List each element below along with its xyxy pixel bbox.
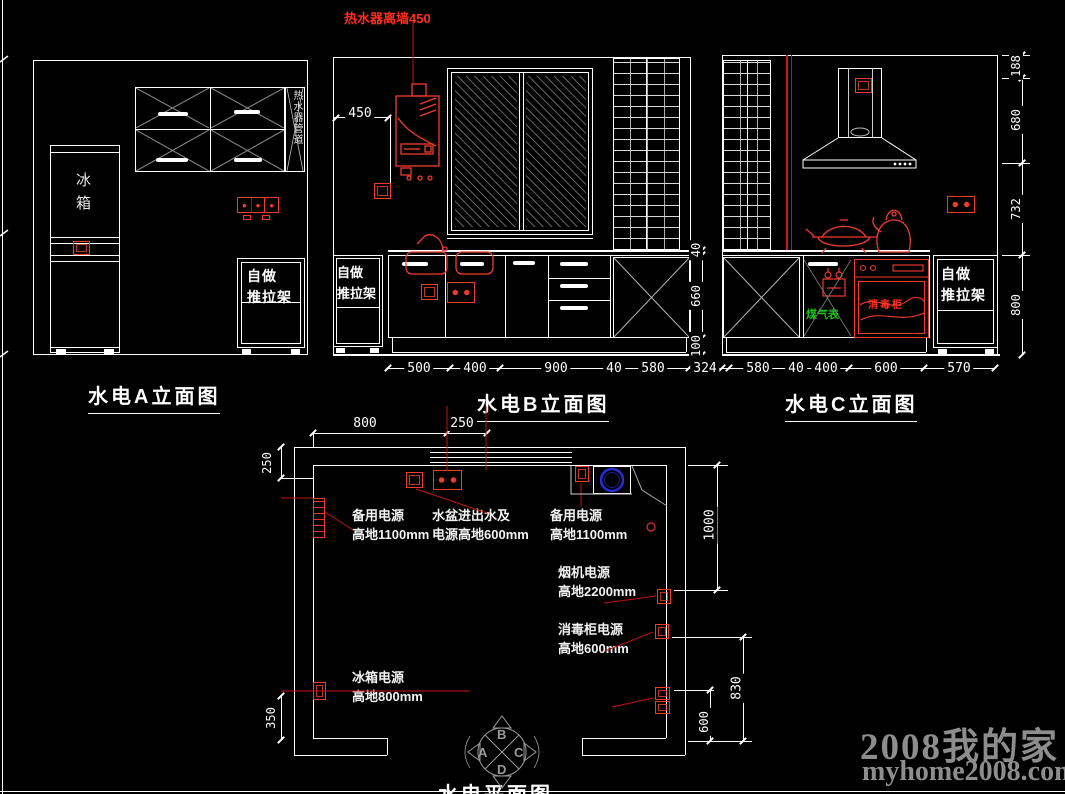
disinfection-cabinet-detail (854, 265, 929, 320)
water-heater-icon (396, 84, 439, 180)
elevation-index-compass-icon (465, 716, 539, 788)
plan-counter-detail (571, 465, 667, 531)
cad-drawing-kitchen-plumbing-electrical: 冰箱 热水器管道 自做 推拉架 (0, 0, 1065, 794)
line-art-layer (0, 0, 1065, 794)
red-leader-lines (281, 22, 656, 707)
frame-ticks (0, 56, 8, 357)
watermark-url: myhome2008.com (862, 756, 1065, 788)
cookware-icon (806, 210, 910, 253)
gas-meter-icon (823, 268, 845, 296)
drain-point-icon (647, 523, 655, 531)
filler-panel-diagonals (287, 88, 303, 171)
range-hood-icon (803, 128, 916, 168)
sink-faucet-icon (406, 235, 493, 274)
